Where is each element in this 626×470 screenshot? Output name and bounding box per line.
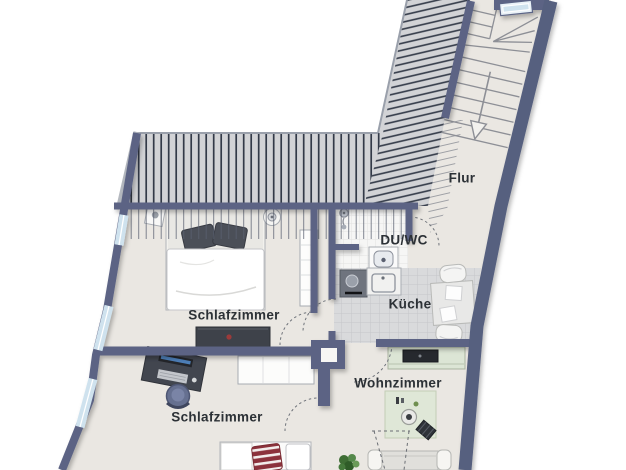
room-label-schlafzimmer-2: Schlafzimmer: [171, 410, 262, 425]
toilet-icon: [369, 247, 398, 269]
room-label-kueche: Küche: [389, 297, 432, 312]
chair: [439, 264, 467, 284]
rug: [385, 391, 436, 440]
kitchen-counter: [340, 268, 401, 297]
bed: [220, 442, 311, 470]
room-label-wohnzimmer: Wohnzimmer: [354, 376, 442, 391]
office-chair: [167, 385, 190, 408]
dresser: [196, 327, 270, 347]
room-label-flur: Flur: [449, 171, 476, 186]
roof-hatching: [118, 0, 470, 206]
floor-plan: Flur DU/WC Küche Schlafzimmer Schlafzimm…: [0, 0, 626, 470]
window: [499, 0, 532, 15]
dining-table: [431, 281, 476, 326]
tv-sideboard: [388, 347, 465, 369]
striped-pillow: [251, 443, 282, 470]
wall-column: [311, 340, 345, 369]
coffee-table: [402, 410, 417, 425]
plant-deco: [414, 402, 419, 407]
sofa: [368, 450, 451, 470]
floor-plan-drawing: [0, 0, 626, 470]
wardrobe: [238, 356, 314, 384]
low-ceiling-hatch: [122, 206, 408, 239]
room-label-du-wc: DU/WC: [380, 233, 427, 248]
room-label-schlafzimmer-1: Schlafzimmer: [188, 308, 279, 323]
stove-icon: [346, 275, 358, 287]
